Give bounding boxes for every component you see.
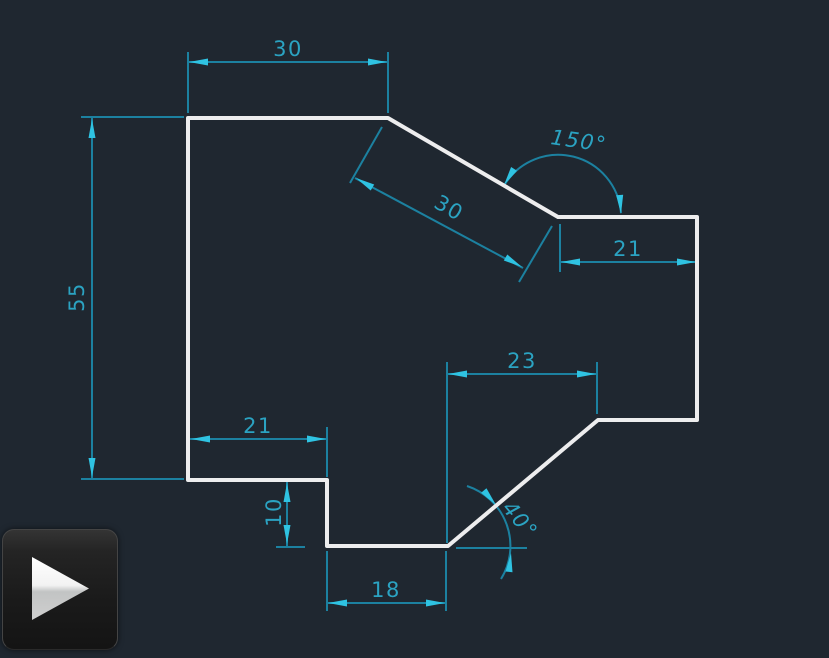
dim-diagonal-edge: 30 [350,127,552,282]
dim-label-step-height: 10 [262,497,286,527]
dim-top-width: 30 [188,37,388,113]
dim-label-right-width: 21 [613,237,643,261]
dim-right-width: 21 [560,224,697,272]
dim-label-bottom-width: 18 [371,578,401,602]
dim-step-width: 21 [190,414,327,477]
dim-label-mid-width: 23 [507,349,537,373]
play-icon [32,557,89,620]
part-outline [188,118,697,546]
dim-angle-bottom: 40° [456,486,543,579]
dim-angle-top: 150° [501,125,624,214]
dim-label-left-height: 55 [65,282,89,312]
dim-label-top-width: 30 [273,37,303,61]
dim-left-height: 55 [65,117,184,479]
play-button[interactable] [2,529,118,650]
drawing-svg: 30 55 30 150° [0,0,829,658]
cad-canvas: 30 55 30 150° [0,0,829,658]
dim-label-angle-top: 150° [549,125,608,157]
dim-step-height: 10 [262,481,305,547]
dim-bottom-width: 18 [327,551,446,611]
dim-label-step-width: 21 [243,414,273,438]
